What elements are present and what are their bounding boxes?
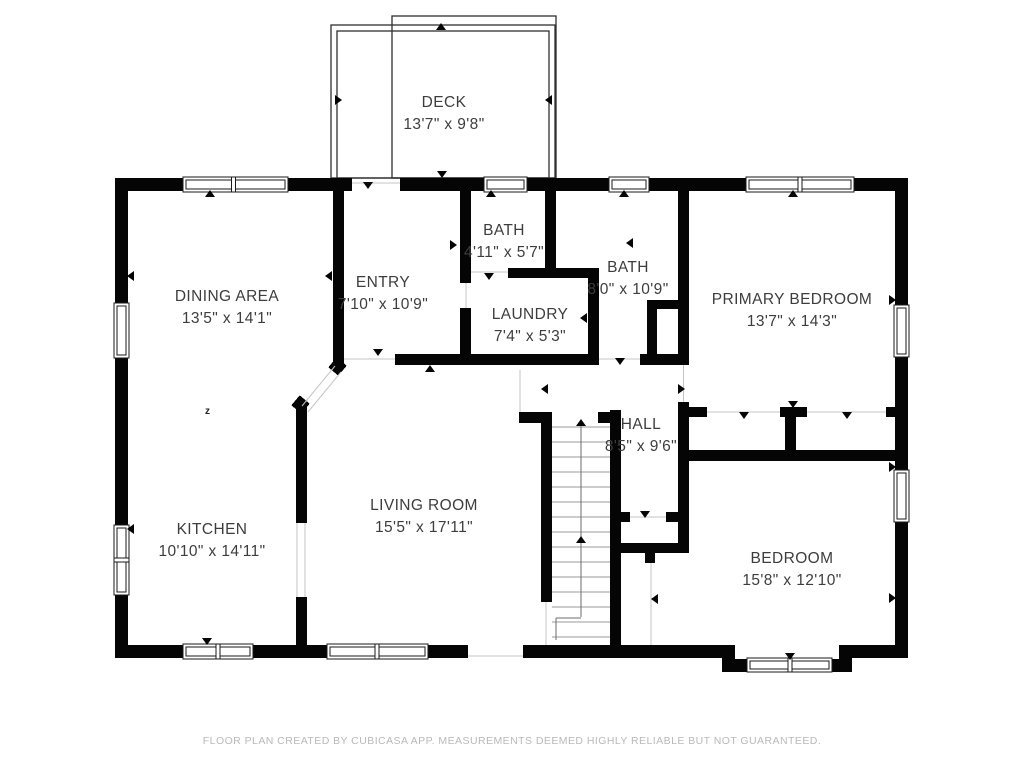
room-label-bath-small: BATH 4'11" x 5'7" [464,220,544,264]
room-name: HALL [605,414,677,436]
room-label-bath-main: BATH 8'0" x 10'9" [587,257,668,301]
room-dims: 13'7" x 14'3" [712,311,872,333]
window [894,305,909,357]
room-label-primary-bedroom: PRIMARY BEDROOM 13'7" x 14'3" [712,289,872,333]
window [183,644,253,659]
room-name: BATH [464,220,544,242]
window [114,303,129,358]
room-name: DINING AREA [175,286,279,308]
room-dims: 13'5" x 14'1" [175,308,279,330]
room-dims: 13'7" x 9'8" [403,114,484,136]
room-name: KITCHEN [158,519,265,541]
room-name: LIVING ROOM [370,495,478,517]
room-label-bedroom: BEDROOM 15'8" x 12'10" [742,548,841,592]
window [183,177,288,192]
room-dims: 10'10" x 14'11" [158,541,265,563]
room-label-hall: HALL 8'5" x 9'6" [605,414,677,458]
room-label-living: LIVING ROOM 15'5" x 17'11" [370,495,478,539]
room-label-entry: ENTRY 7'10" x 10'9" [338,272,428,316]
window [609,177,649,192]
room-dims: 15'8" x 12'10" [742,570,841,592]
room-name: BATH [587,257,668,279]
room-dims: 8'5" x 9'6" [605,436,677,458]
room-name: BEDROOM [742,548,841,570]
window [327,644,428,659]
disclaimer-text: FLOOR PLAN CREATED BY CUBICASA APP. MEAS… [0,735,1024,747]
room-name: DECK [403,92,484,114]
room-label-dining: DINING AREA 13'5" x 14'1" [175,286,279,330]
room-dims: 7'4" x 5'3" [492,326,569,348]
room-label-laundry: LAUNDRY 7'4" x 5'3" [492,304,569,348]
window [484,177,527,192]
room-name: PRIMARY BEDROOM [712,289,872,311]
window [894,470,909,522]
window [746,177,854,192]
room-dims: 4'11" x 5'7" [464,242,544,264]
room-name: LAUNDRY [492,304,569,326]
window [114,525,129,595]
room-label-kitchen: KITCHEN 10'10" x 14'11" [158,519,265,563]
window [747,658,832,672]
opening-symbol: z [205,406,210,417]
room-label-deck: DECK 13'7" x 9'8" [403,92,484,136]
room-dims: 7'10" x 10'9" [338,294,428,316]
staircase [552,419,610,640]
room-dims: 8'0" x 10'9" [587,279,668,301]
floor-plan-page: z DECK 13'7" x 9'8" BATH 4'11" x 5'7" BA… [0,0,1024,768]
floor-plan-drawing: z [0,0,1024,768]
room-dims: 15'5" x 17'11" [370,517,478,539]
room-name: ENTRY [338,272,428,294]
